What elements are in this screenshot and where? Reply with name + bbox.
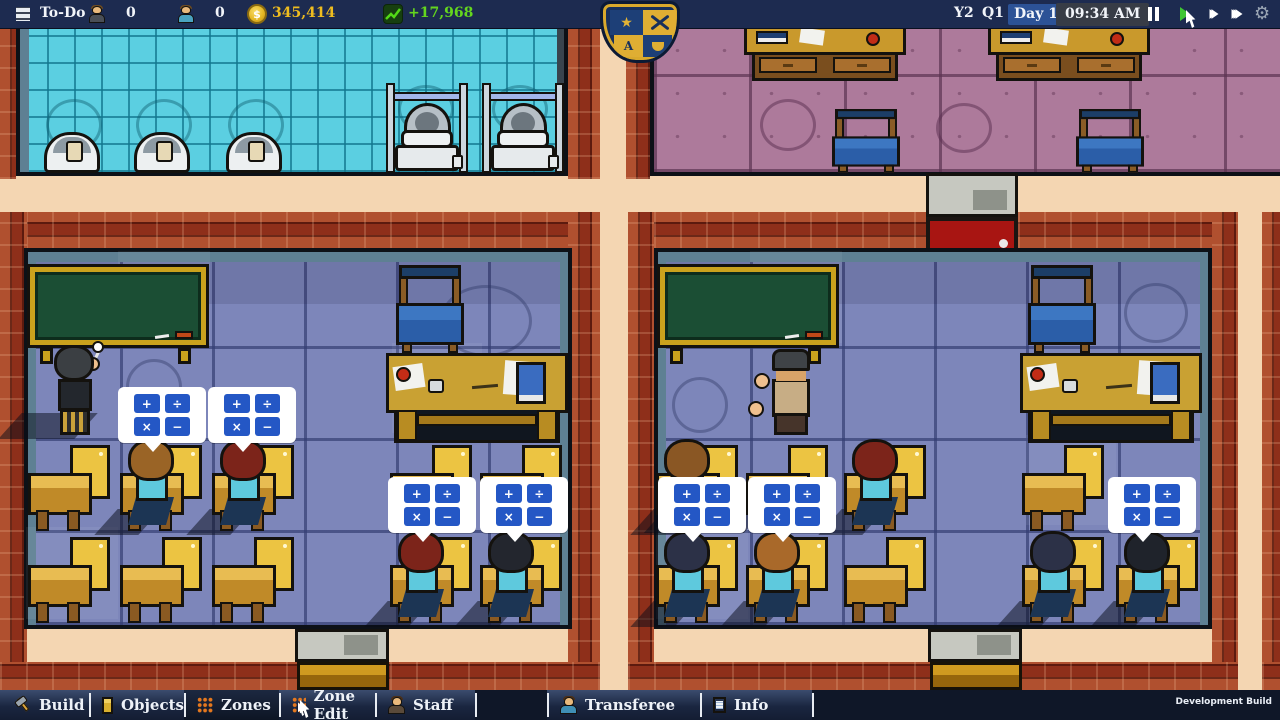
crest-shield: ★ A — [600, 1, 680, 63]
brick-wall — [628, 212, 928, 248]
brick-wall — [1262, 662, 1280, 690]
desk-body — [1022, 473, 1086, 515]
tab-build[interactable]: Build — [0, 690, 89, 720]
teacher-body — [58, 379, 92, 411]
sink[interactable] — [44, 132, 100, 173]
hammer-icon — [13, 696, 31, 714]
math-minus-icon: − — [255, 417, 281, 436]
chair-back — [1079, 109, 1141, 119]
chalkboard[interactable] — [30, 267, 206, 345]
office-chair[interactable] — [832, 109, 900, 172]
math-plus-icon: + — [134, 394, 160, 413]
year-label: Y2 — [954, 5, 974, 21]
student-desk[interactable] — [1116, 537, 1200, 623]
office-desk[interactable] — [744, 29, 906, 81]
staff-icon — [388, 697, 405, 714]
student-hair — [1030, 531, 1076, 573]
desk-drawers — [752, 55, 898, 81]
desk-body — [28, 473, 92, 515]
student-hair — [664, 439, 710, 481]
student-body — [754, 589, 800, 617]
desk-body — [844, 565, 908, 607]
math-minus-icon: − — [795, 507, 821, 526]
teacher-chair[interactable] — [396, 265, 464, 353]
teacher-desk[interactable] — [1020, 353, 1202, 443]
pause-button[interactable] — [1148, 7, 1159, 21]
teacher[interactable] — [46, 343, 110, 441]
brick-wall — [1212, 212, 1238, 664]
bottom-toolbar: Build Objects Zones Zone Edit Staff Tran… — [0, 690, 1280, 720]
doorway-tile — [926, 173, 1018, 217]
money-coin-icon: $ — [247, 4, 267, 24]
teacher-chair[interactable] — [1028, 265, 1096, 353]
math-multiply-icon: × — [1124, 507, 1150, 526]
floor-circle — [936, 103, 992, 153]
wooden-door[interactable] — [930, 662, 1022, 690]
todo-label[interactable]: To-Do — [40, 5, 85, 21]
teacher-hair — [772, 349, 810, 371]
chalk — [785, 334, 799, 339]
chair-back — [1031, 265, 1093, 279]
student-desk[interactable] — [746, 537, 830, 623]
speech-bubble: +÷×− — [1108, 477, 1196, 533]
floor-circle — [672, 377, 728, 433]
desk-bar — [1051, 414, 1171, 426]
teacher-body — [772, 379, 810, 417]
student-desk[interactable] — [1022, 537, 1106, 623]
book — [1150, 362, 1180, 404]
desk-front — [1028, 410, 1194, 443]
brick-wall — [0, 212, 600, 248]
todo-menu-icon[interactable] — [12, 4, 34, 24]
doorway-tile — [295, 629, 389, 662]
student-body — [488, 589, 534, 617]
income-chart-icon — [383, 4, 403, 24]
chair-seat — [832, 136, 900, 166]
teacher-count: 0 — [126, 5, 136, 21]
student-desk[interactable] — [28, 537, 112, 623]
transferee-icon — [560, 697, 577, 714]
tab-label: Objects — [121, 696, 184, 714]
tab-label: Transferee — [585, 696, 675, 714]
student-body — [852, 497, 898, 525]
teacher-count-icon — [88, 6, 106, 23]
mug — [428, 379, 444, 393]
tab-label: Zones — [221, 696, 271, 714]
mug — [1062, 379, 1078, 393]
clock-time: 09:34 AM — [1056, 3, 1149, 26]
student-body — [664, 589, 710, 617]
zones-grid-icon — [197, 697, 213, 713]
student-desk[interactable] — [390, 537, 474, 623]
math-divide-icon: ÷ — [1155, 484, 1181, 503]
crest-keys-icon — [643, 10, 676, 35]
fast-forward-button[interactable] — [1208, 7, 1220, 21]
floor-circle — [1124, 283, 1188, 343]
student-desk[interactable] — [212, 537, 296, 623]
math-plus-icon: + — [404, 484, 430, 503]
book — [516, 362, 546, 404]
student-desk[interactable] — [480, 537, 564, 623]
brick-wall — [0, 29, 16, 179]
math-divide-icon: ÷ — [165, 394, 191, 413]
desk-body — [212, 565, 276, 607]
eraser — [805, 331, 823, 339]
math-multiply-icon: × — [134, 417, 160, 436]
eraser — [175, 331, 193, 339]
student-desk[interactable] — [28, 445, 112, 531]
math-minus-icon: − — [527, 507, 553, 526]
apple — [866, 32, 880, 46]
math-divide-icon: ÷ — [435, 484, 461, 503]
wooden-door[interactable] — [297, 662, 389, 690]
speech-bubble: +÷×− — [118, 387, 206, 443]
money-value: 345,414 — [272, 5, 335, 21]
math-multiply-icon: × — [404, 507, 430, 526]
math-minus-icon: − — [165, 417, 191, 436]
student-desk[interactable] — [212, 445, 296, 531]
apple — [1110, 32, 1124, 46]
crest-compass-icon: A — [614, 35, 643, 57]
math-multiply-icon: × — [496, 507, 522, 526]
math-plus-icon: + — [224, 394, 250, 413]
settings-gear-icon[interactable]: ⚙ — [1254, 3, 1270, 24]
desk-drawers — [996, 55, 1142, 81]
tab-zone-edit[interactable]: Zone Edit — [279, 690, 375, 720]
income-value: +17,968 — [408, 5, 473, 21]
tab-label: Info — [734, 696, 768, 714]
dev-build-label: Development Build — [1176, 697, 1272, 707]
drawer — [1077, 57, 1135, 73]
floor-circle — [760, 99, 816, 151]
student-count-icon — [177, 6, 195, 23]
crest-star-icon: ★ — [610, 10, 643, 35]
student-desk[interactable] — [120, 445, 204, 531]
apple — [1030, 367, 1045, 382]
speech-bubble: +÷×− — [480, 477, 568, 533]
toilet-stall[interactable] — [482, 83, 564, 173]
apple — [396, 367, 411, 382]
drawer — [1003, 57, 1061, 73]
doorway-tile — [928, 629, 1022, 662]
student-desk[interactable] — [1022, 445, 1106, 531]
toilet-tank — [395, 145, 459, 171]
tab-label: Zone Edit — [314, 687, 375, 720]
drawer — [833, 57, 891, 73]
speech-bubble: +÷×− — [388, 477, 476, 533]
math-plus-icon: + — [674, 484, 700, 503]
brick-wall — [628, 212, 654, 664]
math-divide-icon: ÷ — [705, 484, 731, 503]
tab-zones[interactable]: Zones — [184, 690, 279, 720]
student-desk[interactable] — [656, 537, 740, 623]
office-chair[interactable] — [1076, 109, 1144, 172]
school-crest: ★ A — [600, 1, 680, 63]
student-body — [220, 497, 266, 525]
math-minus-icon: − — [705, 507, 731, 526]
tab-label: Build — [39, 696, 84, 714]
speech-bubble: +÷×− — [748, 477, 836, 533]
teacher[interactable] — [760, 351, 812, 443]
books — [756, 31, 788, 44]
chair-seat — [396, 303, 464, 345]
speech-bubble: +÷×− — [658, 477, 746, 533]
chair-back — [835, 109, 897, 119]
office-desk[interactable] — [988, 29, 1150, 81]
speech-bubble: +÷×− — [208, 387, 296, 443]
math-multiply-icon: × — [764, 507, 790, 526]
tab-info[interactable]: Info — [700, 690, 812, 720]
sink[interactable] — [134, 132, 190, 173]
math-divide-icon: ÷ — [255, 394, 281, 413]
math-divide-icon: ÷ — [795, 484, 821, 503]
chair-back — [399, 265, 461, 279]
student-body — [398, 589, 444, 617]
math-plus-icon: + — [1124, 484, 1150, 503]
student-hair — [852, 439, 898, 481]
math-minus-icon: − — [1155, 507, 1181, 526]
student-count: 0 — [215, 5, 225, 21]
brick-wall — [568, 212, 600, 664]
tab-staff[interactable]: Staff — [375, 690, 475, 720]
game-world: +÷×− +÷×− +÷×− +÷×− +÷×− +÷×− +÷×− — [0, 29, 1280, 690]
toilet-tank — [491, 145, 555, 171]
teacher-hand — [748, 401, 764, 417]
desk-body — [120, 565, 184, 607]
tab-objects[interactable]: Objects — [89, 690, 184, 720]
chair-seat — [1028, 303, 1096, 345]
toilet-stall[interactable] — [386, 83, 468, 173]
fastest-forward-button[interactable] — [1230, 7, 1244, 21]
game-window: +÷×− +÷×− +÷×− +÷×− +÷×− +÷×− +÷×− To-Do… — [0, 0, 1280, 720]
desk-body — [28, 565, 92, 607]
info-icon — [713, 697, 726, 713]
desk-front — [394, 410, 560, 443]
teacher-desk[interactable] — [386, 353, 568, 443]
brick-wall — [568, 29, 600, 179]
tab-transferee[interactable]: Transferee — [547, 690, 700, 720]
student-desk[interactable] — [844, 537, 928, 623]
teacher-skirt — [60, 409, 90, 435]
student-desk[interactable] — [844, 445, 928, 531]
student-body — [1030, 589, 1076, 617]
math-minus-icon: − — [435, 507, 461, 526]
math-plus-icon: + — [496, 484, 522, 503]
cabinet-icon — [102, 697, 113, 714]
stall-rail — [489, 92, 557, 101]
pointer-ball — [92, 341, 104, 353]
teacher-legs — [774, 413, 808, 435]
math-multiply-icon: × — [674, 507, 700, 526]
books — [1000, 31, 1032, 44]
brick-wall — [1262, 212, 1280, 664]
teacher-hand — [754, 373, 770, 389]
quarter-label: Q1 — [982, 5, 1004, 21]
brick-wall — [1018, 212, 1212, 248]
chalkboard[interactable] — [660, 267, 836, 345]
crest-trophy-icon — [643, 35, 672, 57]
sink[interactable] — [226, 132, 282, 173]
desk-bar — [417, 414, 537, 426]
student-desk[interactable] — [120, 537, 204, 623]
math-plus-icon: + — [764, 484, 790, 503]
chalkboard-leg — [670, 348, 683, 364]
math-multiply-icon: × — [224, 417, 250, 436]
drawer — [759, 57, 817, 73]
stall-rail — [393, 92, 461, 101]
student-body — [128, 497, 174, 525]
chalkboard-leg — [178, 348, 191, 364]
math-divide-icon: ÷ — [527, 484, 553, 503]
student-body — [1124, 589, 1170, 617]
chair-seat — [1076, 136, 1144, 166]
tab-label: Staff — [413, 696, 453, 714]
teacher-hair — [54, 345, 94, 381]
chalk — [155, 334, 169, 339]
